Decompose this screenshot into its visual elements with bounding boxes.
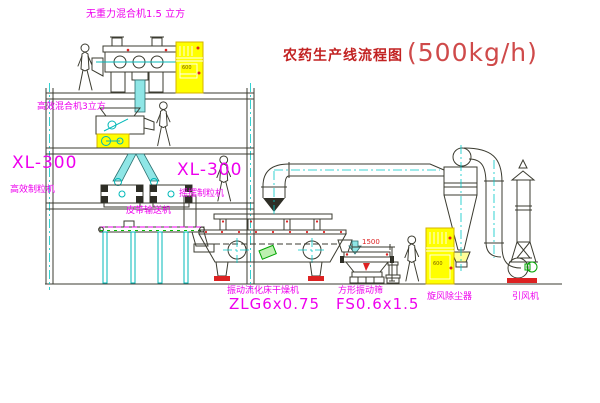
label-high-efficiency-mixer: 高效混合机3立方 [37,103,106,112]
label-sieve-model: FS0.6x1.5 [336,297,419,312]
belt-conveyor-machine [99,221,208,283]
label-dryer-model: ZLG6x0.75 [229,297,320,312]
label-granulator-mid-model: XL-300 [177,162,242,179]
label-granulator-mid-name: 摇摆制粒机 [179,190,224,199]
exhaust-pipe [464,148,521,268]
label-gravity-mixer: 无重力混合机1.5 立方 [86,10,185,20]
title-capacity: (500kg/h) [407,40,538,65]
label-granulator-left-model: XL-300 [12,155,77,172]
high-efficiency-mixer-machine [94,108,154,148]
title-text: 农药生产线流程图 [283,48,403,65]
label-cyclone: 旋风除尘器 [427,293,472,302]
dimension-sieve-length: 1500 [362,239,380,246]
platform-structure [45,83,562,290]
pump [386,262,400,283]
exhaust-stack [509,160,538,262]
y-chute [113,154,159,181]
cabinet-2-panel-text: 600 [433,262,443,267]
fluid-bed-dryer-machine [194,198,346,281]
control-cabinet-2 [426,228,454,284]
flow-diagram-canvas: 农药生产线流程图 (500kg/h) 无重力混合机1.5 立方 高效混合机3立方… [0,0,600,403]
granulator-right [150,179,196,228]
label-granulator-left-name: 高效制粒机 [10,186,55,195]
label-fan: 引风机 [512,293,539,302]
label-belt-conveyor: 皮带输送机 [126,207,171,216]
diagram-title: 农药生产线流程图 (500kg/h) [283,40,538,65]
granulator-left [101,179,143,208]
exhaust-duct [261,162,444,214]
cabinet-1-panel-text: 600 [182,66,192,71]
